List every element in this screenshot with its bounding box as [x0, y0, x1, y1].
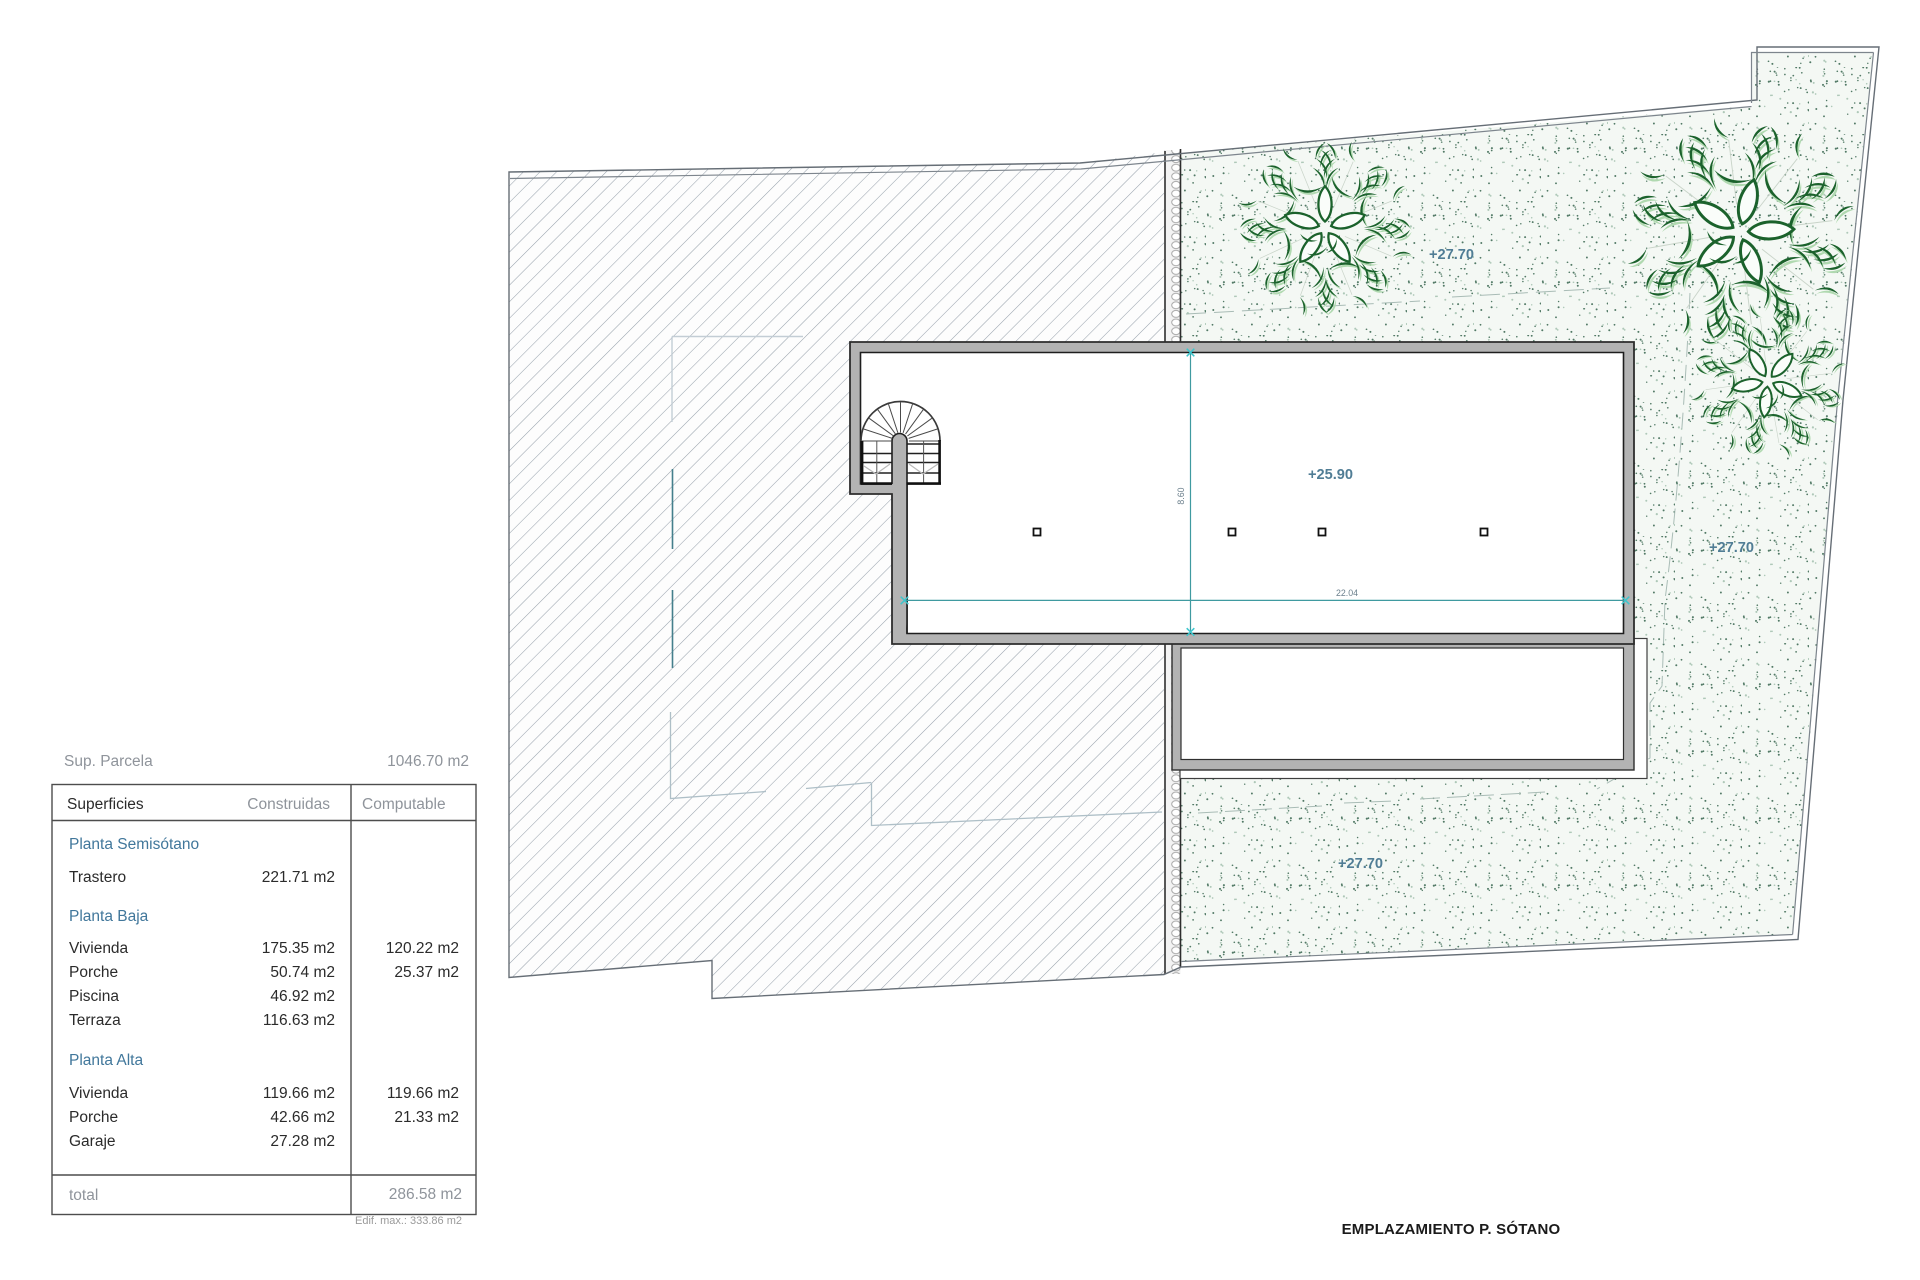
svg-text:Porche: Porche	[69, 964, 118, 981]
svg-text:42.66 m2: 42.66 m2	[270, 1109, 335, 1126]
svg-text:total: total	[69, 1187, 98, 1204]
svg-text:21.33 m2: 21.33 m2	[394, 1109, 459, 1126]
svg-text:Terraza: Terraza	[69, 1012, 121, 1029]
svg-text:Edif. max.: 333.86 m2: Edif. max.: 333.86 m2	[355, 1215, 462, 1227]
svg-text:Planta Alta: Planta Alta	[69, 1052, 143, 1069]
svg-text:Garaje: Garaje	[69, 1133, 116, 1150]
svg-text:Computable: Computable	[362, 796, 446, 813]
svg-text:Porche: Porche	[69, 1109, 118, 1126]
svg-text:25.37 m2: 25.37 m2	[394, 964, 459, 981]
svg-text:1046.70 m2: 1046.70 m2	[387, 753, 469, 770]
svg-text:Vivienda: Vivienda	[69, 1085, 129, 1102]
svg-text:8.60: 8.60	[1176, 487, 1186, 504]
svg-text:50.74 m2: 50.74 m2	[270, 964, 335, 981]
svg-text:Superficies: Superficies	[67, 796, 144, 813]
svg-text:Construidas: Construidas	[247, 796, 330, 813]
svg-text:119.66 m2: 119.66 m2	[387, 1085, 459, 1102]
svg-text:Trastero: Trastero	[69, 869, 126, 886]
svg-text:+27.70: +27.70	[1709, 540, 1754, 556]
svg-text:119.66 m2: 119.66 m2	[263, 1085, 335, 1102]
svg-text:+27.70: +27.70	[1338, 856, 1383, 872]
svg-text:175.35 m2: 175.35 m2	[262, 940, 335, 957]
svg-text:46.92 m2: 46.92 m2	[270, 988, 335, 1005]
svg-text:+25.90: +25.90	[1308, 467, 1353, 483]
svg-text:22.04: 22.04	[1336, 588, 1358, 598]
svg-text:Vivienda: Vivienda	[69, 940, 129, 957]
svg-text:221.71 m2: 221.71 m2	[262, 869, 335, 886]
svg-text:Planta Semisótano: Planta Semisótano	[69, 836, 199, 853]
svg-text:EMPLAZAMIENTO P. SÓTANO: EMPLAZAMIENTO P. SÓTANO	[1342, 1220, 1561, 1238]
svg-text:27.28 m2: 27.28 m2	[270, 1133, 335, 1150]
svg-text:Planta Baja: Planta Baja	[69, 908, 149, 925]
svg-text:286.58 m2: 286.58 m2	[389, 1186, 462, 1203]
svg-text:Sup. Parcela: Sup. Parcela	[64, 753, 153, 770]
svg-text:Piscina: Piscina	[69, 988, 119, 1005]
svg-text:+27.70: +27.70	[1429, 247, 1474, 263]
svg-text:120.22 m2: 120.22 m2	[386, 940, 459, 957]
svg-text:116.63 m2: 116.63 m2	[263, 1012, 335, 1029]
